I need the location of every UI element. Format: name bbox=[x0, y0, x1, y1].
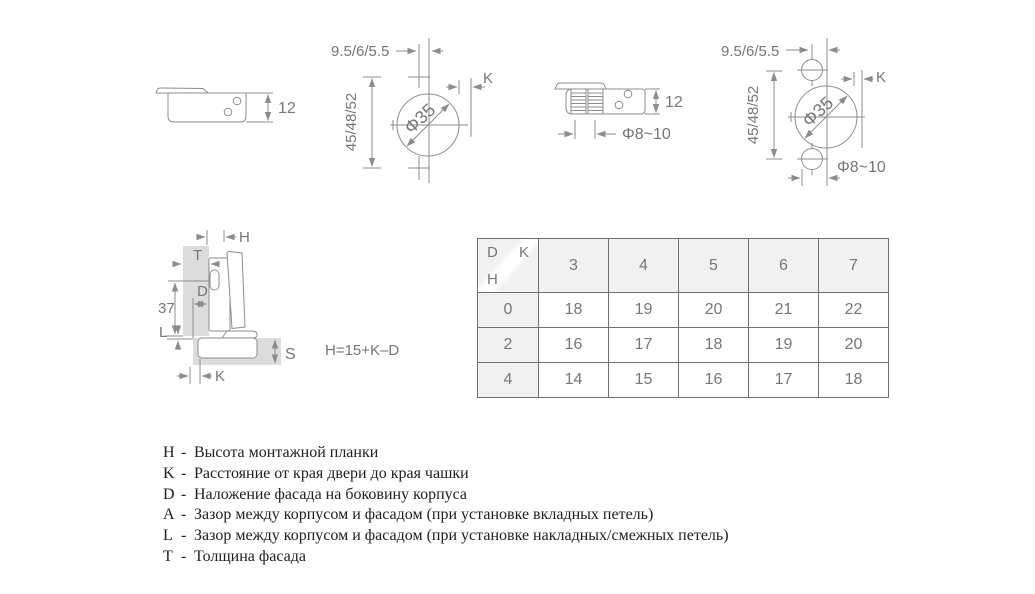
l-label: L bbox=[159, 324, 167, 341]
cup-detail bbox=[210, 270, 219, 290]
k-dimension bbox=[841, 70, 873, 148]
installation-cross-section: H T D 37 L S bbox=[150, 228, 420, 393]
legend-separator: - bbox=[181, 486, 194, 504]
table-cell: 17 bbox=[609, 328, 679, 363]
hole-spacing-label: 45/48/52 bbox=[745, 86, 762, 144]
corner-label-d: D bbox=[487, 244, 498, 261]
legend-letter: K bbox=[163, 465, 181, 483]
mounting-plate bbox=[198, 338, 257, 358]
legend-description: Расстояние от края двери до края чашки bbox=[194, 465, 469, 483]
legend-item-l: L - Зазор между корпусом и фасадом (при … bbox=[163, 527, 729, 548]
screw-hole bbox=[233, 97, 241, 105]
table-cell: 16 bbox=[679, 363, 749, 398]
table-row-header: 4 bbox=[478, 363, 539, 398]
screw-hole bbox=[615, 101, 623, 109]
d-label: D bbox=[197, 283, 208, 300]
drilling-pattern-screw-on: 9.5/6/5.5 45/48/52 K bbox=[330, 38, 502, 188]
cup-flange-shape bbox=[555, 83, 606, 89]
legend-letter: H bbox=[163, 444, 181, 462]
edge-distance-label: 9.5/6/5.5 bbox=[721, 43, 779, 60]
table-cell: 21 bbox=[749, 293, 819, 328]
table-col-header: 7 bbox=[819, 239, 889, 293]
legend-description: Толщина фасада bbox=[194, 548, 306, 566]
h-dimension bbox=[196, 230, 236, 245]
hinge-mounting-spec-page: 12 9.5/6/5.5 45/48/52 bbox=[0, 0, 1035, 594]
hole-spacing-label: 45/48/52 bbox=[343, 93, 360, 151]
cup-side-view-dowel-diagram: 12 Φ8~10 bbox=[548, 72, 698, 147]
k-label: K bbox=[483, 70, 493, 87]
h-label: H bbox=[239, 229, 250, 246]
legend-letter: D bbox=[163, 486, 181, 504]
dowel-diameter-dimension bbox=[558, 120, 616, 139]
legend-description: Зазор между корпусом и фасадом (при уста… bbox=[194, 506, 653, 524]
table-corner-cell: D K H bbox=[478, 239, 539, 293]
legend: H - Высота монтажной планки K - Расстоян… bbox=[163, 444, 729, 569]
legend-description: Зазор между корпусом и фасадом (при уста… bbox=[194, 527, 729, 545]
cup-height-label: 12 bbox=[665, 94, 683, 111]
hole-spacing-dimension bbox=[766, 71, 782, 159]
legend-separator: - bbox=[181, 548, 194, 566]
height-dimension bbox=[645, 89, 660, 114]
table-cell: 15 bbox=[609, 363, 679, 398]
table-cell: 18 bbox=[819, 363, 889, 398]
s-label: S bbox=[285, 346, 296, 363]
legend-description: Наложение фасада на боковину корпуса bbox=[194, 486, 467, 504]
dowel-diameter-label: Φ8~10 bbox=[622, 126, 671, 143]
legend-separator: - bbox=[181, 444, 194, 462]
legend-item-h: H - Высота монтажной планки bbox=[163, 444, 729, 465]
drilling-pattern-dowel: 9.5/6/5.5 45/48/52 K bbox=[720, 38, 900, 188]
overlay-table: D K H 3 4 5 6 7 0 18 19 20 21 22 2 16 17… bbox=[477, 238, 889, 398]
legend-letter: A bbox=[163, 506, 181, 524]
k-label: K bbox=[876, 69, 886, 86]
cup-flange-shape bbox=[156, 88, 208, 93]
corner-label-k: K bbox=[519, 244, 529, 261]
legend-item-a: A - Зазор между корпусом и фасадом (при … bbox=[163, 506, 729, 527]
table-row: 2 16 17 18 19 20 bbox=[478, 328, 889, 363]
legend-item-t: T - Толщина фасада bbox=[163, 548, 729, 569]
screw-line-label: 37 bbox=[158, 300, 175, 317]
table-col-header: 6 bbox=[749, 239, 819, 293]
k-label: K bbox=[215, 368, 225, 385]
legend-separator: - bbox=[181, 506, 194, 524]
t-label: T bbox=[193, 247, 202, 264]
table-cell: 19 bbox=[749, 328, 819, 363]
legend-letter: L bbox=[163, 527, 181, 545]
hinge-arm-foot bbox=[222, 331, 257, 338]
edge-distance-label: 9.5/6/5.5 bbox=[331, 43, 389, 60]
formula-label: H=15+K–D bbox=[325, 342, 399, 359]
table-col-header: 5 bbox=[679, 239, 749, 293]
legend-description: Высота монтажной планки bbox=[194, 444, 378, 462]
dowel-diameter-label: Φ8~10 bbox=[837, 159, 886, 176]
table-row-header: 0 bbox=[478, 293, 539, 328]
table-cell: 19 bbox=[609, 293, 679, 328]
table-cell: 14 bbox=[539, 363, 609, 398]
legend-letter: T bbox=[163, 548, 181, 566]
hole-spacing-dimension bbox=[363, 77, 381, 168]
cup-height-label: 12 bbox=[278, 100, 296, 117]
table-cell: 17 bbox=[749, 363, 819, 398]
corner-label-h: H bbox=[487, 271, 498, 288]
legend-separator: - bbox=[181, 465, 194, 483]
dowel-diameter-dimension bbox=[788, 169, 840, 186]
cup-diameter-label: Φ35 bbox=[799, 93, 838, 131]
legend-separator: - bbox=[181, 527, 194, 545]
height-dimension bbox=[246, 93, 273, 122]
table-row-header: 2 bbox=[478, 328, 539, 363]
table-cell: 20 bbox=[819, 328, 889, 363]
table-cell: 16 bbox=[539, 328, 609, 363]
table-cell: 18 bbox=[539, 293, 609, 328]
table-cell: 18 bbox=[679, 328, 749, 363]
table-cell: 22 bbox=[819, 293, 889, 328]
table-row: 0 18 19 20 21 22 bbox=[478, 293, 889, 328]
legend-item-d: D - Наложение фасада на боковину корпуса bbox=[163, 486, 729, 507]
corner-diagonal: D K H bbox=[478, 239, 538, 292]
screw-hole bbox=[624, 90, 632, 98]
screw-hole bbox=[224, 108, 232, 116]
cup-side-view-diagram: 12 bbox=[148, 75, 313, 135]
hinge-cup-section bbox=[209, 258, 230, 331]
cup-diameter-label: Φ35 bbox=[401, 100, 440, 138]
table-cell: 20 bbox=[679, 293, 749, 328]
table-header-row: D K H 3 4 5 6 7 bbox=[478, 239, 889, 293]
cup-body-shape bbox=[168, 93, 246, 122]
table-col-header: 4 bbox=[609, 239, 679, 293]
table-col-header: 3 bbox=[539, 239, 609, 293]
legend-item-k: K - Расстояние от края двери до края чаш… bbox=[163, 465, 729, 486]
table-row: 4 14 15 16 17 18 bbox=[478, 363, 889, 398]
k-dimension bbox=[446, 78, 485, 137]
